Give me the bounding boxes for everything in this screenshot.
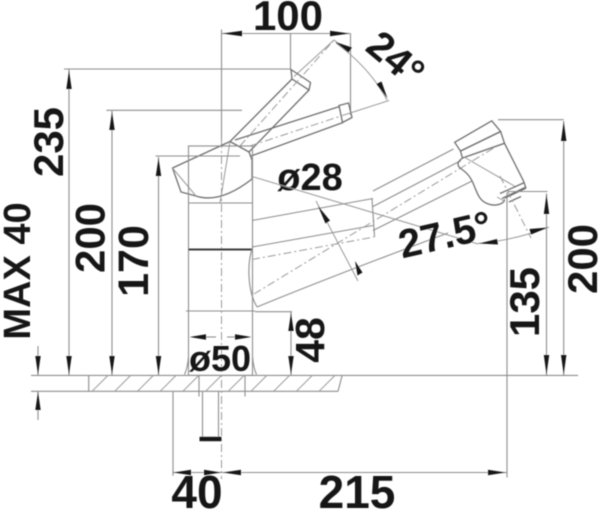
svg-text:135: 135	[501, 267, 548, 337]
svg-text:100: 100	[253, 0, 323, 39]
svg-text:48: 48	[287, 317, 333, 363]
svg-text:40: 40	[171, 466, 222, 512]
svg-text:170: 170	[110, 225, 158, 297]
svg-text:200: 200	[559, 224, 600, 294]
svg-text:235: 235	[25, 107, 72, 177]
svg-text:ø50: ø50	[189, 338, 251, 379]
svg-text:200: 200	[67, 203, 114, 273]
svg-text:MAX 40: MAX 40	[0, 202, 39, 339]
svg-text:215: 215	[319, 466, 396, 512]
svg-text:ø28: ø28	[277, 157, 342, 199]
